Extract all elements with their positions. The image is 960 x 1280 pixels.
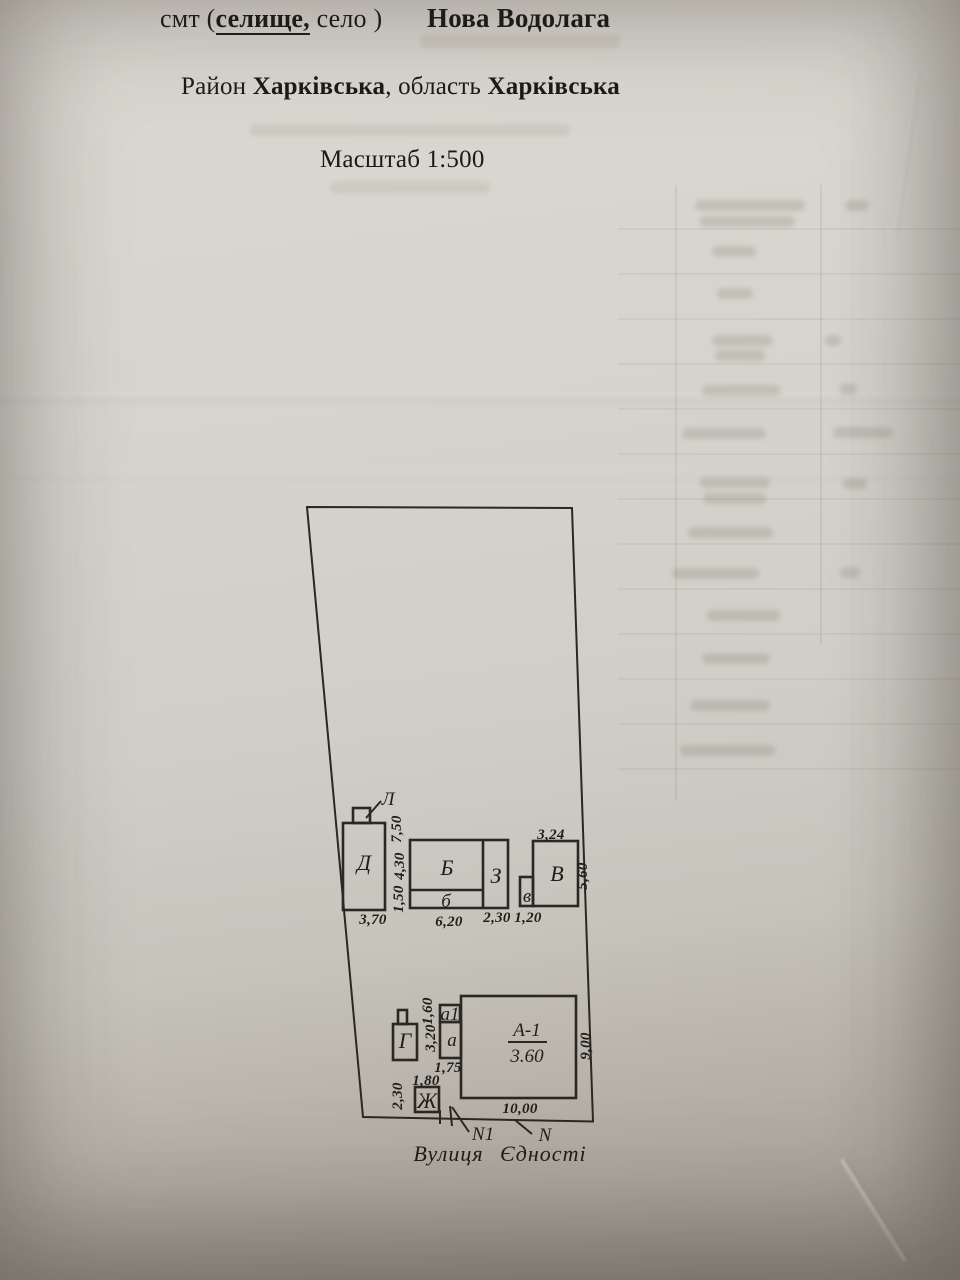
dim-D-height: 7,50 — [389, 815, 405, 843]
dim-A1-width: 10,00 — [502, 1101, 537, 1117]
dim-Z-width: 2,30 — [482, 910, 511, 926]
site-plan-drawing: Л Д Б б З в В Г а1 а Ж А-1 3.60 3,70 6,2… — [0, 0, 960, 1280]
label-v: в — [523, 886, 531, 907]
label-D: Д — [355, 850, 372, 875]
dim-B-height: 4,30 — [392, 852, 408, 881]
label-a: а — [447, 1030, 457, 1051]
leader-line-L — [366, 801, 381, 818]
dim-Zh-width: 1,80 — [412, 1073, 440, 1089]
dim-v-width: 1,20 — [514, 910, 542, 926]
dim-V-width: 3,24 — [536, 827, 565, 843]
building-G-chimney — [398, 1010, 407, 1024]
dim-V-height: 5,60 — [575, 862, 591, 890]
label-Z: З — [491, 863, 502, 888]
label-G: Г — [398, 1028, 413, 1053]
label-b: б — [441, 891, 452, 912]
label-a1: а1 — [441, 1004, 460, 1025]
street-name: Вулиця Єдності — [413, 1141, 586, 1166]
dim-a-height: 3,20 — [423, 1024, 439, 1053]
dim-b-height: 1,50 — [391, 885, 407, 913]
dim-Zh-height: 2,30 — [390, 1082, 406, 1111]
dim-B-width: 6,20 — [435, 914, 463, 930]
dim-D-width: 3,70 — [358, 912, 387, 928]
label-V: В — [550, 861, 563, 886]
label-A1-area: 3.60 — [509, 1046, 544, 1067]
label-L: Л — [381, 789, 396, 810]
dim-a1-height: 1,60 — [420, 997, 436, 1025]
dim-A1-height: 9,00 — [578, 1032, 594, 1060]
label-B: Б — [440, 855, 454, 880]
photographed-document: { "header": { "settlement_prefix": "смт … — [0, 0, 960, 1280]
label-A1-name: А-1 — [511, 1020, 540, 1041]
label-Zh: Ж — [416, 1088, 438, 1113]
leader-line-N — [515, 1120, 532, 1134]
gate-tick — [450, 1106, 452, 1126]
